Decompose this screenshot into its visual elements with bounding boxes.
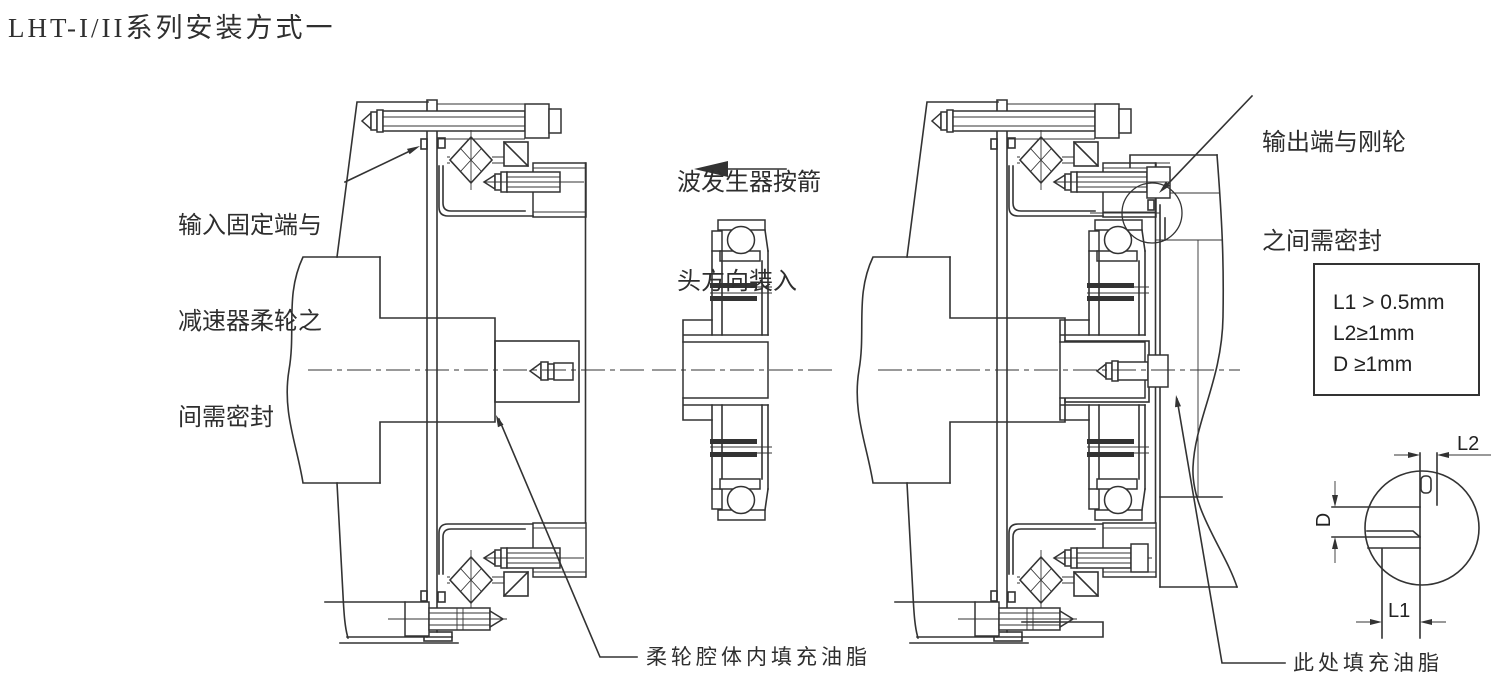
dimension-label-l1: L1 xyxy=(1388,600,1410,623)
left-assembly-drawing xyxy=(287,100,648,643)
input-seal-leader xyxy=(345,151,410,182)
annotation-output-seal-line2: 之间需密封 xyxy=(1262,225,1406,258)
spec-line-d: D ≥1mm xyxy=(1333,349,1478,380)
annotation-wave-generator-line1: 波发生器按箭 xyxy=(677,166,821,199)
annotation-input-seal: 输入固定端与 减速器柔轮之 间需密封 xyxy=(178,146,322,466)
label-flexspline-grease: 柔轮腔体内填充油脂 xyxy=(646,641,871,671)
spec-line-l1: L1 > 0.5mm xyxy=(1333,287,1478,318)
detail-view-drawing xyxy=(1332,452,1491,638)
grease-here-arrowhead xyxy=(1175,395,1181,407)
annotation-input-seal-line1: 输入固定端与 xyxy=(178,210,322,242)
installation-diagram-page: LHT-I/II系列安装方式一 输入固定端与 减速器柔轮之 间需密封 波发生器按… xyxy=(0,0,1498,679)
page-title: LHT-I/II系列安装方式一 xyxy=(8,6,335,45)
label-grease-here: 此处填充油脂 xyxy=(1293,647,1443,677)
annotation-output-seal-line1: 输出端与刚轮 xyxy=(1262,126,1406,159)
grease-here-leader xyxy=(1177,399,1285,663)
output-seal-leader xyxy=(1166,96,1252,186)
spec-line-l2: L2≥1mm xyxy=(1333,318,1478,349)
annotation-output-seal: 输出端与刚轮 之间需密封 xyxy=(1262,60,1406,291)
annotation-input-seal-line2: 减速器柔轮之 xyxy=(178,306,322,338)
tolerance-spec-box: L1 > 0.5mm L2≥1mm D ≥1mm xyxy=(1313,263,1480,396)
right-assembly-drawing xyxy=(857,100,1240,643)
dimension-label-d: D xyxy=(1311,507,1337,533)
annotation-wave-generator-line2: 头方向装入 xyxy=(677,265,821,298)
dimension-label-l2: L2 xyxy=(1457,433,1479,456)
annotation-input-seal-line3: 间需密封 xyxy=(178,402,322,434)
annotation-wave-generator: 波发生器按箭 头方向装入 xyxy=(677,100,821,331)
input-seal-arrowhead xyxy=(407,146,420,154)
